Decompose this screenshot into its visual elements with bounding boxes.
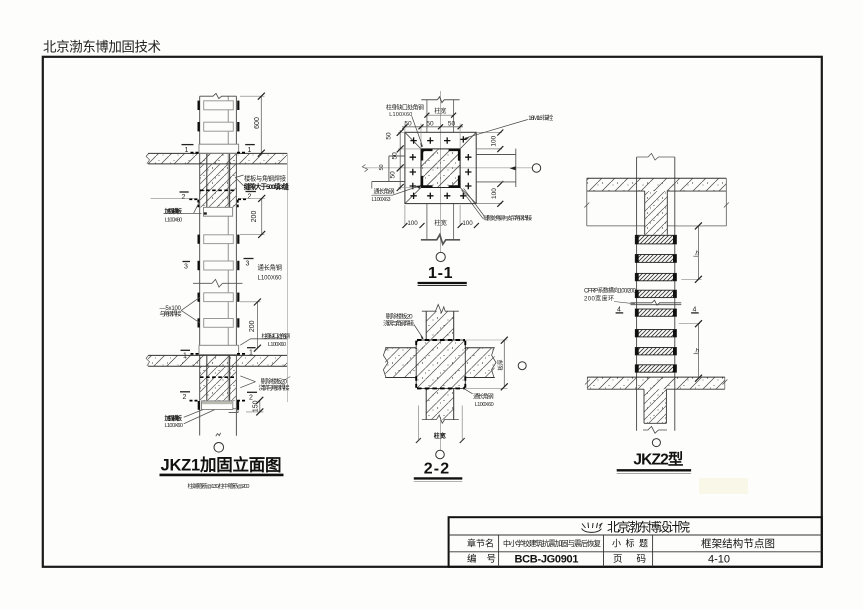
svg-text:浇筑与角钢焊接: 浇筑与角钢焊接 — [259, 384, 290, 392]
svg-text:章节名: 章节名 — [467, 538, 494, 549]
svg-text:柱身缺口处角钢: 柱身缺口处角钢 — [386, 103, 424, 111]
svg-text:3: 3 — [246, 261, 250, 268]
svg-text:加强横板: 加强横板 — [164, 414, 183, 422]
svg-text:16M16 锚栓: 16M16 锚栓 — [528, 114, 553, 122]
svg-text:1: 1 — [185, 147, 189, 154]
svg-text:1: 1 — [183, 352, 187, 359]
svg-text:JKZ2型: JKZ2型 — [633, 450, 683, 468]
svg-text:100: 100 — [462, 220, 473, 227]
svg-text:50: 50 — [448, 120, 456, 127]
svg-text:柱宽: 柱宽 — [434, 219, 446, 227]
svg-text:200: 200 — [249, 320, 256, 332]
svg-text:100: 100 — [407, 220, 418, 227]
svg-text:CFRP系数横向100/200: CFRP系数横向100/200 — [584, 287, 637, 295]
svg-text:BCB-JG0901: BCB-JG0901 — [515, 554, 579, 566]
svg-text:通长角钢: 通长角钢 — [258, 262, 283, 271]
svg-text:1: 1 — [249, 350, 253, 357]
svg-text:L100X60: L100X60 — [475, 402, 494, 408]
svg-text:200宽度环: 200宽度环 — [584, 295, 614, 303]
svg-text:柱端箍筋@130,柱中箍筋@200: 柱端箍筋@130,柱中箍筋@200 — [188, 482, 250, 490]
svg-text:4-10: 4-10 — [708, 553, 730, 565]
svg-text:100: 100 — [491, 135, 498, 146]
svg-text:1-1: 1-1 — [428, 265, 453, 282]
svg-text:50: 50 — [386, 132, 393, 140]
svg-text:北京渤东博设计院: 北京渤东博设计院 — [607, 520, 690, 535]
svg-text:与角钢焊接: 与角钢焊接 — [160, 310, 182, 318]
svg-text:柱宽: 柱宽 — [434, 432, 446, 440]
svg-text:编 号: 编 号 — [467, 553, 496, 565]
svg-text:楼板与角钢焊接: 楼板与角钢焊接 — [244, 173, 287, 182]
svg-text:页 码: 页 码 — [613, 554, 646, 565]
svg-text:L100X60: L100X60 — [165, 423, 184, 429]
svg-text:150: 150 — [253, 400, 260, 412]
svg-text:缝隙大于500填3缝: 缝隙大于500填3缝 — [244, 182, 289, 191]
svg-text:小标题: 小标题 — [612, 538, 648, 549]
svg-text:JKZ1加固立面图: JKZ1加固立面图 — [161, 454, 282, 474]
svg-text:3: 3 — [184, 264, 188, 271]
svg-text:50: 50 — [390, 171, 397, 179]
svg-text:L100X60: L100X60 — [268, 342, 286, 348]
svg-text:50: 50 — [426, 120, 434, 127]
svg-text:通长角钢: 通长角钢 — [473, 392, 494, 400]
svg-text:2: 2 — [248, 194, 252, 201]
svg-text:100: 100 — [491, 188, 498, 199]
svg-text:板厚: 板厚 — [497, 359, 505, 371]
svg-text:加强横板: 加强横板 — [164, 208, 183, 216]
svg-text:剔除楼板20: 剔除楼板20 — [386, 312, 414, 320]
svg-text:通长角钢: 通长角钢 — [374, 188, 395, 196]
svg-text:2-2: 2-2 — [424, 461, 450, 478]
svg-text:600: 600 — [254, 117, 261, 129]
svg-text:2: 2 — [183, 394, 187, 401]
svg-text:L100X60: L100X60 — [389, 112, 412, 118]
svg-text:2: 2 — [182, 194, 186, 201]
svg-text:中小学校建筑抗震加固与震后恢复: 中小学校建筑抗震加固与震后恢复 — [503, 538, 602, 548]
svg-text:缝隙处角钢与支吊角钢焊接: 缝隙处角钢与支吊角钢焊接 — [483, 214, 532, 222]
svg-text:浇筑与角钢焊接: 浇筑与角钢焊接 — [383, 319, 414, 327]
svg-text:L100X63: L100X63 — [372, 197, 391, 203]
svg-text:框架结构节点图: 框架结构节点图 — [701, 537, 775, 550]
svg-text:1: 1 — [248, 147, 252, 154]
svg-text:北京渤东博加固技术: 北京渤东博加固技术 — [43, 39, 161, 55]
svg-text:200: 200 — [251, 211, 258, 223]
svg-text:2: 2 — [249, 394, 253, 401]
svg-text:L100X60: L100X60 — [258, 275, 283, 281]
svg-text:柱宽: 柱宽 — [434, 107, 446, 115]
svg-text:50: 50 — [404, 120, 412, 127]
svg-text:50: 50 — [379, 164, 385, 170]
svg-text:L100X60: L100X60 — [165, 217, 183, 223]
